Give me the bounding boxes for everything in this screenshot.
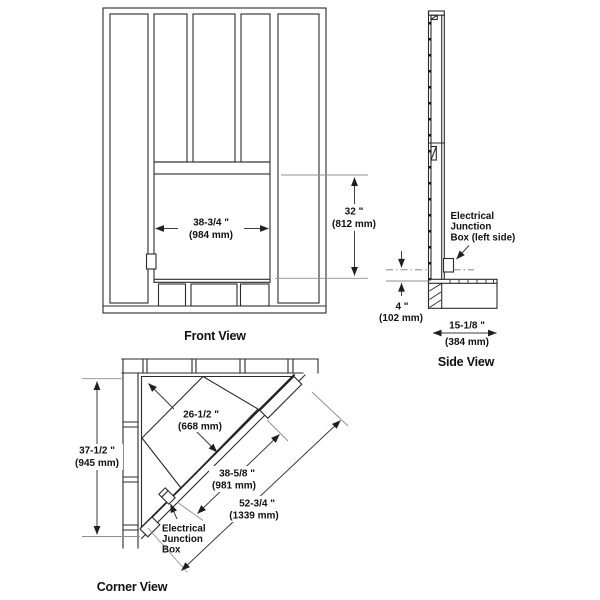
corner-junction-note-line3: Box: [162, 545, 181, 556]
side-depth-metric: (384 mm): [445, 337, 489, 348]
side-junction-height-metric: (102 mm): [379, 313, 423, 324]
side-junction-note-line3: Box (left side): [451, 233, 516, 244]
corner-wall-height-imperial: 37-1/2 ": [79, 446, 115, 457]
front-view: 38-3/4 " (984 mm) 32 " (812 mm) Front Vi…: [103, 8, 380, 343]
side-junction-height-dimension: 4 " (102 mm): [379, 251, 428, 324]
corner-opening-imperial: 38-5/8 ": [219, 469, 255, 480]
corner-opening-metric: (981 mm): [212, 481, 256, 492]
front-width-metric: (984 mm): [189, 230, 233, 241]
front-height-dimension: 32 " (812 mm): [275, 175, 380, 278]
corner-wall-height-dimension: 37-1/2 " (945 mm): [71, 379, 140, 537]
front-sill-blocking: [159, 284, 270, 306]
corner-depth-metric: (668 mm): [178, 422, 222, 433]
corner-electrical-junction-box: [159, 488, 175, 504]
front-header: [154, 162, 270, 174]
side-junction-height-imperial: 4 ": [395, 302, 408, 313]
diagonal-wall-top-plate: [260, 377, 302, 419]
corner-top-wall: [122, 359, 318, 377]
corner-depth-imperial: 26-1/2 ": [183, 410, 219, 421]
side-depth-dimension: 15-1/8 " (384 mm): [433, 321, 497, 349]
corner-junction-note-line2: Junction: [162, 534, 203, 545]
corner-wall-height-metric: (945 mm): [75, 458, 119, 469]
corner-view-label: Corner View: [97, 580, 168, 594]
corner-left-wall: [123, 359, 142, 548]
diagonal-wall-bottom-plate: [140, 517, 160, 537]
corner-view: 37-1/2 " (945 mm) 26-1/2 " (668 mm) 38-5…: [71, 359, 348, 594]
front-height-imperial: 32 ": [345, 207, 364, 218]
side-depth-imperial: 15-1/8 ": [449, 321, 485, 332]
corner-overall-metric: (1339 mm): [229, 511, 278, 522]
platform-deck-ticks: [450, 280, 494, 283]
side-electrical-junction-box: [444, 259, 454, 273]
side-junction-annotation: Electrical Junction Box (left side): [451, 211, 516, 259]
side-view-label: Side View: [438, 355, 495, 369]
diagram-canvas: 38-3/4 " (984 mm) 32 " (812 mm) Front Vi…: [0, 0, 600, 600]
top-wall-studs: [143, 359, 293, 373]
side-junction-note-line2: Junction: [451, 222, 492, 233]
side-view: 4 " (102 mm) 15-1/8 " (384 mm) Electrica…: [379, 11, 515, 369]
corner-depth-dimension: 26-1/2 " (668 mm): [149, 384, 229, 453]
platform-stud-hatch: [430, 284, 442, 308]
front-electrical-junction-box: [147, 254, 157, 269]
left-wall-blocking: [123, 422, 138, 530]
front-height-metric: (812 mm): [332, 219, 376, 230]
front-view-label: Front View: [184, 329, 246, 343]
framing-diagram: 38-3/4 " (984 mm) 32 " (812 mm) Front Vi…: [0, 0, 600, 600]
side-wall-top-cap: [429, 11, 445, 15]
side-junction-note-line1: Electrical: [451, 211, 495, 222]
side-junction-leader-arrow: [457, 246, 470, 260]
front-stud-bays: [110, 14, 319, 303]
front-width-imperial: 38-3/4 ": [193, 218, 229, 229]
front-wall-outer-frame: [103, 8, 326, 313]
side-base-platform: [429, 279, 498, 308]
side-wall: [429, 11, 445, 308]
front-width-dimension: 38-3/4 " (984 mm): [156, 215, 269, 242]
corner-overall-imperial: 52-3/4 ": [239, 499, 275, 510]
corner-junction-note-line1: Electrical: [162, 524, 206, 535]
